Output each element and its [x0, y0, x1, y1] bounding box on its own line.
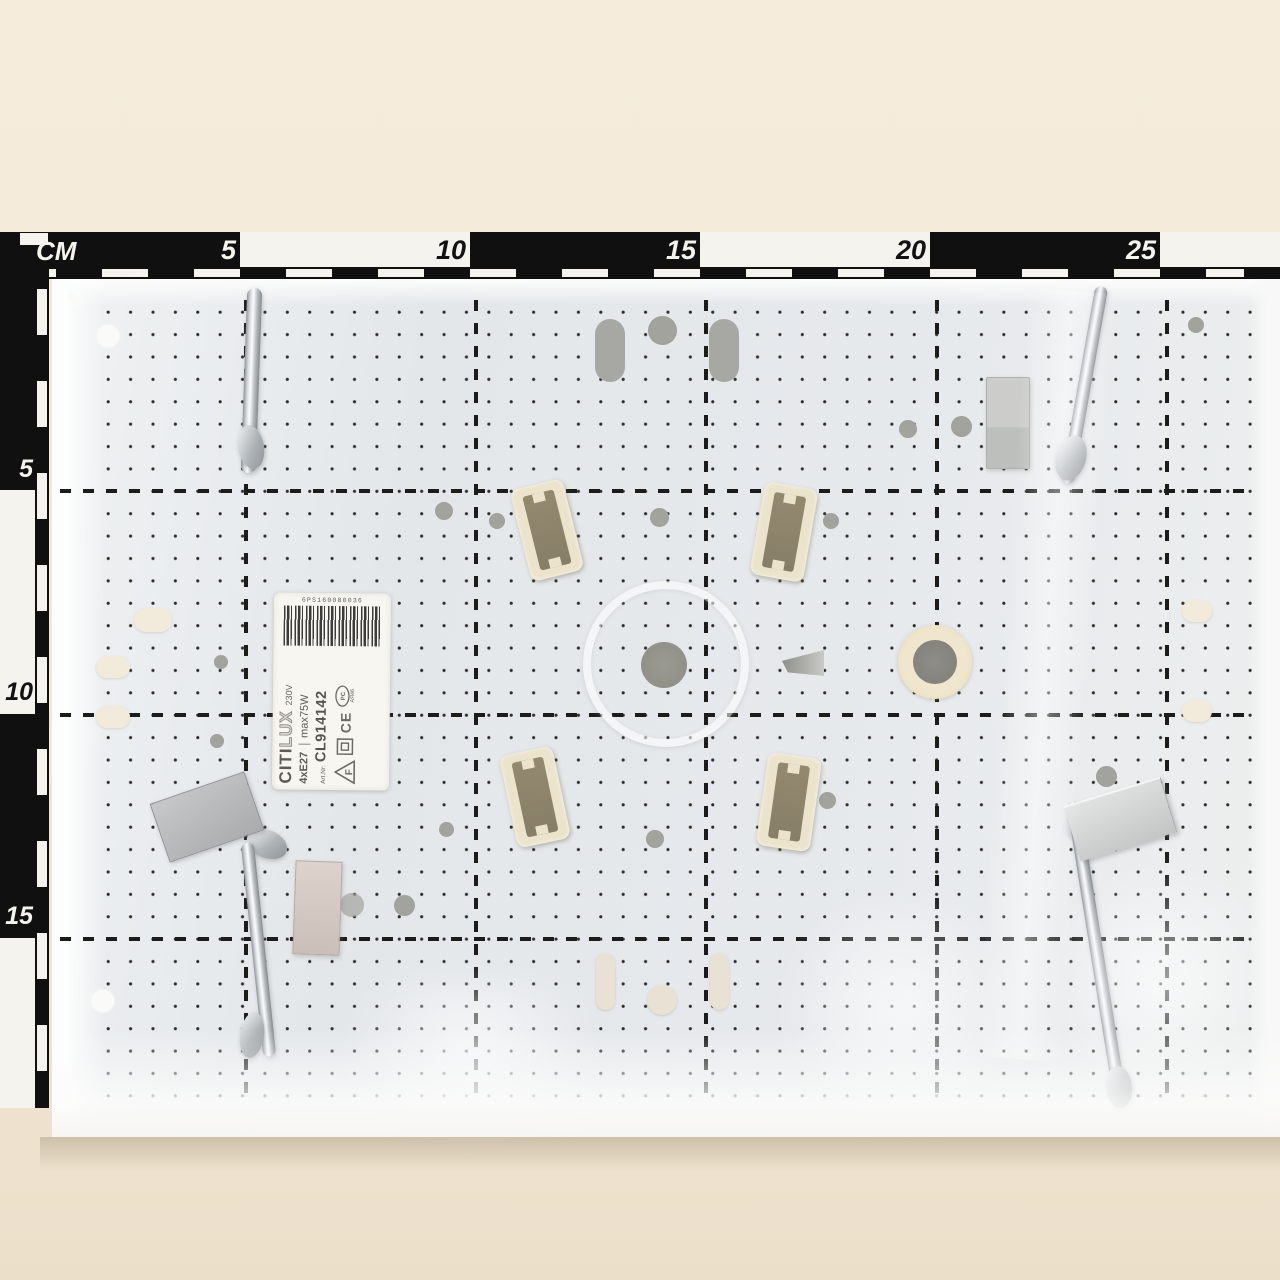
- brand-lux: LUX: [276, 710, 296, 747]
- socket-notch: [787, 764, 800, 775]
- article-number: CL914142: [313, 690, 330, 762]
- scale-mark-10: 10: [400, 234, 466, 267]
- article-line: Art.Nr: CL914142: [313, 655, 330, 784]
- product-label: 6PS160080036 CITILUX 230V 4xE27 max75W A…: [272, 592, 391, 790]
- socket-core: [511, 757, 558, 838]
- svg-text:F: F: [344, 769, 355, 775]
- scale-tickband: [0, 267, 1280, 279]
- certification-row: F CE PC АЯ46: [334, 655, 356, 784]
- product-photo-scene: 6PS160080036 CITILUX 230V 4xE27 max75W A…: [0, 0, 1280, 1280]
- panel-hole: [489, 513, 505, 529]
- scale-unit-label: CM: [36, 236, 76, 267]
- socket-spec: 4xE27: [298, 752, 310, 784]
- grommet-center: [913, 640, 957, 684]
- socket-core: [762, 492, 807, 572]
- cm-ticks: [37, 279, 47, 1108]
- scale-mark-left-5: 5: [0, 453, 33, 486]
- edge-hole: [92, 990, 114, 1012]
- edge-slot: [96, 706, 130, 728]
- panel-hole: [1188, 317, 1204, 333]
- edge-slot: [1182, 600, 1212, 622]
- scale-mark-15: 15: [630, 234, 696, 267]
- svg-text:PC: PC: [341, 691, 347, 700]
- center-disc: [641, 642, 687, 688]
- spec-line: 4xE27 max75W: [298, 655, 311, 784]
- f-mark-icon: F: [334, 760, 355, 784]
- socket-notch: [771, 560, 784, 571]
- power-spec: max75W: [298, 694, 311, 745]
- panel-bottom-edge: [52, 1030, 1280, 1137]
- mounting-slot: [595, 319, 625, 382]
- scale-tickband: [35, 279, 49, 1108]
- scale-mark-left-10: 10: [0, 676, 33, 709]
- panel-hole: [394, 895, 415, 916]
- panel-hole: [210, 734, 224, 748]
- rostest-mark: PC АЯ46: [335, 685, 356, 707]
- edge-slot: [96, 656, 130, 678]
- bottom-slot: [596, 953, 615, 1010]
- panel-hole: [439, 822, 454, 837]
- socket-notch: [783, 494, 796, 505]
- panel-hole: [650, 508, 669, 527]
- brand-citi: CITI: [276, 747, 296, 783]
- metal-block: [292, 860, 342, 956]
- barcode: [283, 605, 380, 646]
- scale-block: [1160, 232, 1280, 267]
- article-prefix: Art.Nr:: [320, 765, 327, 784]
- panel-hole: [819, 792, 836, 809]
- label-rotated-text: CITILUX 230V 4xE27 max75W Art.Nr: CL9141…: [272, 648, 390, 790]
- bottom-slot: [710, 953, 729, 1010]
- edge-slot: [134, 608, 172, 632]
- panel-hole: [435, 502, 453, 520]
- panel-shadow: [40, 1137, 1280, 1171]
- brand-line: CITILUX 230V: [276, 654, 297, 783]
- scale-block: [0, 938, 35, 1108]
- mounting-hole: [648, 316, 677, 345]
- panel-hole: [1096, 766, 1117, 787]
- scale-mark-left-15: 15: [0, 900, 33, 933]
- panel-hole: [823, 513, 839, 529]
- mounting-slot: [709, 319, 739, 382]
- panel-hole: [340, 893, 364, 917]
- edge-slot: [1182, 700, 1212, 722]
- edge-hole: [97, 325, 119, 347]
- scale-mark-5: 5: [170, 234, 236, 267]
- double-insulation-icon: [336, 738, 353, 755]
- socket-core: [522, 489, 571, 570]
- ce-mark: CE: [337, 712, 353, 734]
- voltage-rating: 230V: [284, 684, 294, 705]
- barcode-digits: 6PS160080036: [274, 596, 391, 604]
- scale-corner: [0, 267, 49, 279]
- socket-notch: [548, 557, 562, 569]
- scale-mark-20: 20: [860, 234, 926, 267]
- scale-mark-25: 25: [1090, 234, 1156, 267]
- socket-core: [768, 762, 810, 842]
- cm-ticks: [0, 269, 1280, 277]
- cert-code: АЯ46: [350, 689, 356, 703]
- panel-hole: [646, 830, 664, 848]
- panel-hole: [899, 420, 917, 438]
- panel-hole: [214, 655, 228, 669]
- socket-notch: [535, 824, 549, 835]
- bottom-hole: [647, 985, 677, 1015]
- socket-notch: [778, 830, 791, 841]
- panel-hole: [951, 416, 972, 437]
